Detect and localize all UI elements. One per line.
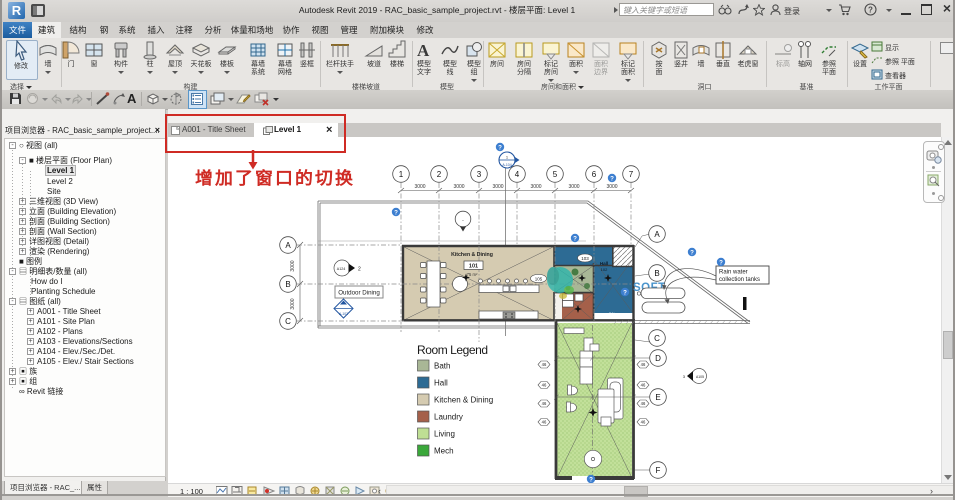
svg-text:Rain water: Rain water [719,270,748,276]
svg-text:103: 103 [581,256,589,261]
svg-text:102: 102 [601,267,608,272]
svg-text:?: ? [498,145,502,152]
svg-text:D: D [655,354,661,363]
svg-text:3000: 3000 [606,184,617,190]
svg-text:Laundry: Laundry [434,413,463,422]
svg-text:C: C [654,334,660,343]
svg-text:6: 6 [592,170,597,179]
svg-text:A: A [285,241,291,250]
svg-text:3000: 3000 [568,184,579,190]
svg-text:3000: 3000 [290,298,296,309]
svg-text:?: ? [610,176,614,183]
svg-text:105: 105 [535,277,543,282]
svg-text:增加了窗口的切换: 增加了窗口的切换 [195,168,355,188]
svg-text:3000: 3000 [453,184,464,190]
svg-text:E: E [655,393,660,402]
svg-text:Outdoor Dining: Outdoor Dining [338,290,380,297]
svg-text:?: ? [573,236,577,243]
svg-text:A-104: A-104 [502,163,511,167]
svg-text:Room Legend: Room Legend [417,343,488,357]
svg-text:46: 46 [641,401,646,406]
svg-text:101: 101 [469,264,478,270]
svg-text:Bath: Bath [434,362,450,371]
svg-text:3000: 3000 [290,260,296,271]
svg-text:DN: DN [609,312,615,316]
svg-text:3000: 3000 [414,184,425,190]
svg-text:3: 3 [683,374,686,379]
svg-text:46: 46 [641,362,646,367]
svg-text:A-103: A-103 [339,312,348,316]
svg-text:?: ? [623,290,627,297]
svg-text:collection tanks: collection tanks [719,277,760,283]
svg-text:A: A [654,230,660,239]
svg-text:7: 7 [629,170,634,179]
svg-text:46: 46 [542,420,547,425]
svg-text:46: 46 [542,362,547,367]
svg-text:F: F [656,466,661,475]
svg-text:46: 46 [641,383,646,388]
svg-text:Kitchen & Dining: Kitchen & Dining [451,252,493,258]
svg-text:46: 46 [542,401,547,406]
svg-text:B: B [654,269,659,278]
svg-text:3000: 3000 [492,184,503,190]
svg-text:?: ? [394,210,398,217]
svg-text:Living: Living [434,430,455,439]
svg-text:1: 1 [399,170,404,179]
svg-text:A: A [417,41,430,60]
svg-text:75 m²: 75 m² [467,272,478,277]
svg-text:B: B [285,280,290,289]
svg-text:A124: A124 [337,267,345,271]
svg-text:46: 46 [641,420,646,425]
svg-text:Hall: Hall [600,261,608,266]
svg-text:Hall: Hall [434,379,448,388]
svg-text:C: C [285,317,291,326]
svg-text:A105: A105 [696,375,704,379]
svg-text:2: 2 [358,267,361,273]
svg-text:?: ? [868,6,873,15]
svg-text:5: 5 [553,170,558,179]
svg-text:2: 2 [437,170,442,179]
svg-text:4: 4 [515,170,520,179]
svg-text:3000: 3000 [530,184,541,190]
svg-text:Mech: Mech [434,447,454,456]
svg-text:?: ? [690,250,694,257]
svg-text:46: 46 [542,383,547,388]
svg-text:Kitchen & Dining: Kitchen & Dining [434,396,493,405]
svg-text:?: ? [719,260,723,267]
svg-text:3: 3 [477,170,482,179]
